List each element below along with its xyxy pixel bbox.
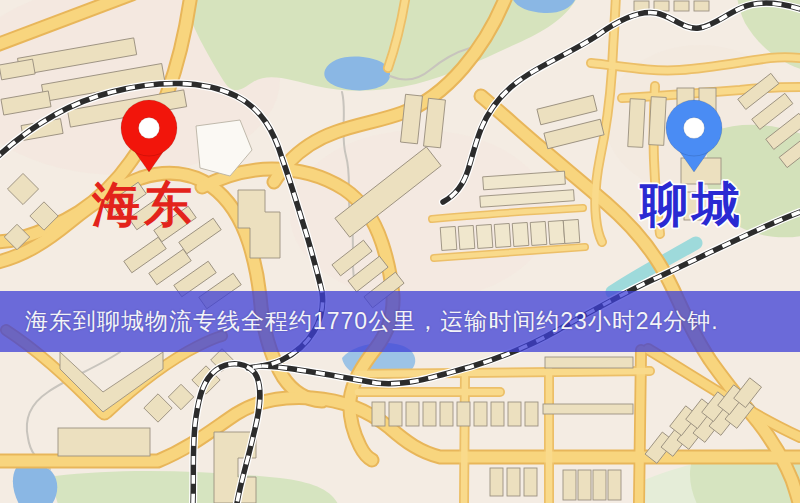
destination-marker — [666, 100, 722, 172]
origin-marker — [121, 100, 177, 172]
markers-overlay: 海东 聊城 — [0, 0, 800, 503]
origin-pin-icon[interactable] — [121, 100, 177, 172]
origin-pin-hole — [139, 118, 160, 139]
route-map-image: 海东 聊城 海东到聊城物流专线全程约1770公里，运输时间约23小时24分钟. — [0, 0, 800, 503]
origin-label: 海东 — [91, 178, 196, 231]
destination-label: 聊城 — [638, 178, 744, 231]
destination-pin-hole — [684, 118, 705, 139]
route-info-banner: 海东到聊城物流专线全程约1770公里，运输时间约23小时24分钟. — [0, 291, 800, 352]
destination-pin-icon[interactable] — [666, 100, 722, 172]
route-info-text: 海东到聊城物流专线全程约1770公里，运输时间约23小时24分钟. — [25, 306, 719, 337]
